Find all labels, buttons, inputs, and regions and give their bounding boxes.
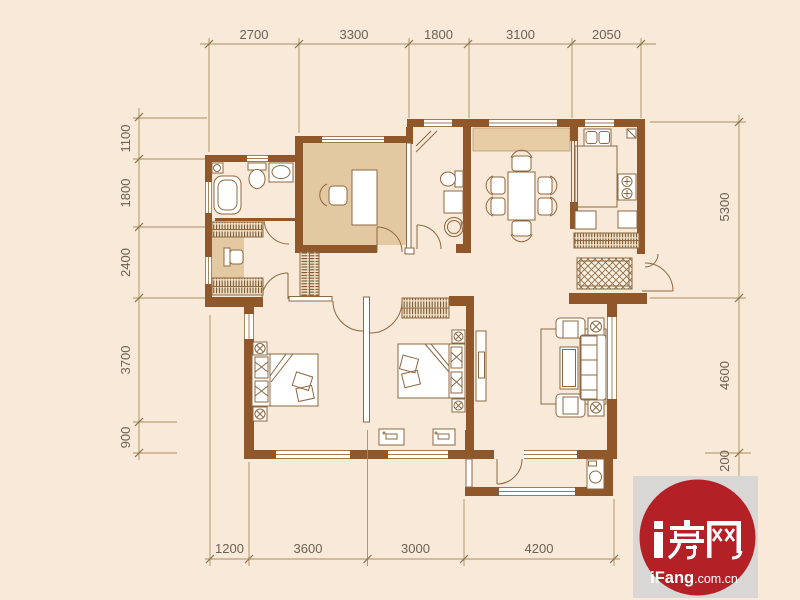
svg-text:3100: 3100 [506,27,535,42]
svg-text:3600: 3600 [294,541,323,556]
svg-text:3000: 3000 [401,541,430,556]
svg-text:200: 200 [717,450,732,472]
svg-text:iFang.com.cn: iFang.com.cn [650,569,738,587]
svg-text:2400: 2400 [118,248,133,277]
svg-text:1200: 1200 [215,541,244,556]
svg-text:2700: 2700 [240,27,269,42]
svg-text:5300: 5300 [717,193,732,222]
svg-text:3300: 3300 [340,27,369,42]
svg-text:1800: 1800 [424,27,453,42]
svg-text:1800: 1800 [118,179,133,208]
svg-text:900: 900 [118,427,133,449]
svg-text:3700: 3700 [118,346,133,375]
svg-text:4600: 4600 [717,361,732,390]
svg-text:2050: 2050 [592,27,621,42]
svg-text:4200: 4200 [525,541,554,556]
svg-text:1100: 1100 [118,125,133,153]
